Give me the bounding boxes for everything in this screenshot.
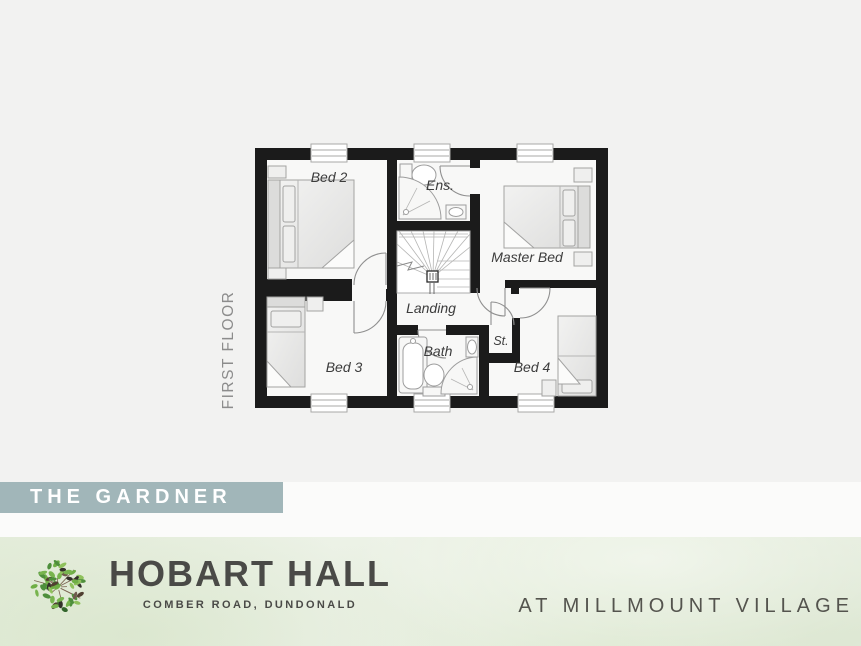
label-master-bed: Master Bed [491, 249, 564, 265]
development-footer: HOBART HALL COMBER ROAD, DUNDONALD AT MI… [0, 537, 861, 646]
house-type-title: THE GARDNER [0, 482, 283, 513]
floor-plan: Bed 2 Ens. Master Bed Landing Bed 3 Bath… [0, 0, 861, 482]
bath-sink [466, 337, 478, 357]
development-address: COMBER ROAD, DUNDONALD [96, 599, 404, 611]
page: Bed 2 Ens. Master Bed Landing Bed 3 Bath… [0, 0, 861, 646]
window-bed4 [518, 394, 554, 412]
development-title-block: HOBART HALL COMBER ROAD, DUNDONALD [96, 556, 404, 611]
staircase [397, 231, 470, 294]
window-bath [414, 394, 450, 412]
label-bath: Bath [424, 343, 453, 359]
floor-level-label: FIRST FLOOR [220, 291, 237, 410]
tree-of-leaves-icon [16, 545, 100, 629]
label-bed2: Bed 2 [311, 169, 348, 185]
house-type-banner: THE GARDNER [0, 482, 283, 513]
window-master [517, 144, 553, 162]
window-bed3 [311, 394, 347, 412]
label-store: St. [493, 334, 508, 348]
label-landing: Landing [406, 300, 456, 316]
label-ensuite: Ens. [426, 177, 454, 193]
development-name: HOBART HALL [96, 556, 404, 592]
label-bed4: Bed 4 [514, 359, 551, 375]
hobart-hall-tree-logo [16, 545, 100, 629]
window-bed2 [311, 144, 347, 162]
label-bed3: Bed 3 [326, 359, 363, 375]
tree-logo-leaves [30, 559, 86, 613]
village-location-line: AT MILLMOUNT VILLAGE [518, 595, 854, 618]
ensuite-sink [446, 205, 466, 219]
window-ensuite [414, 144, 450, 162]
